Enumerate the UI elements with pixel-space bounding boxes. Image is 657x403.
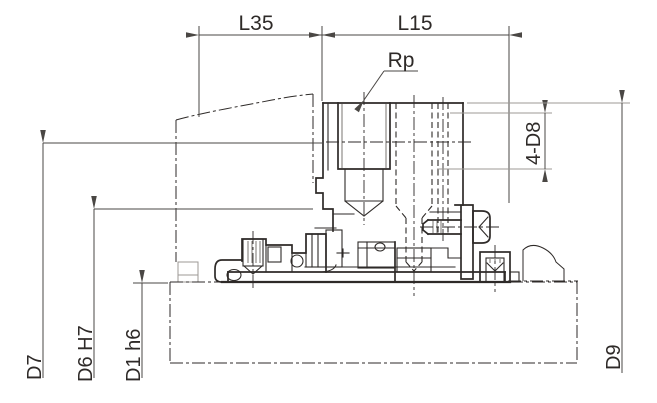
seal-face-stack bbox=[306, 228, 349, 267]
label-d6h7: D6 H7 bbox=[75, 325, 97, 382]
spring-section bbox=[291, 255, 303, 267]
label-d9: D9 bbox=[603, 344, 625, 370]
dimension-l35: L35 bbox=[199, 12, 322, 117]
drive-block bbox=[480, 252, 519, 282]
label-d1h6: D1 h6 bbox=[123, 329, 145, 382]
rotating-collar-assembly bbox=[215, 234, 326, 282]
gland-inner-steps bbox=[305, 242, 461, 282]
o-ring-mid bbox=[375, 243, 385, 251]
label-l35: L35 bbox=[238, 12, 273, 35]
dimension-d9: D9 bbox=[467, 103, 630, 373]
technical-drawing-canvas: L35 L15 Rp 4-D8 D9 D7 D6 H7 bbox=[0, 0, 657, 403]
dimension-d6h7: D6 H7 bbox=[75, 209, 313, 382]
label-4d8: 4-D8 bbox=[523, 122, 545, 165]
label-rp: Rp bbox=[388, 49, 415, 72]
phantom-shaft bbox=[170, 281, 577, 363]
label-l15: L15 bbox=[397, 12, 432, 35]
shaft-sleeve bbox=[222, 272, 510, 282]
dimension-4d8: 4-D8 bbox=[437, 113, 552, 169]
seal-drawing-svg: L35 L15 Rp 4-D8 D9 D7 D6 H7 bbox=[0, 0, 657, 403]
label-d7: D7 bbox=[24, 354, 46, 380]
leader-rp: Rp bbox=[364, 49, 418, 100]
gland-bolt bbox=[423, 211, 490, 243]
dimension-d1h6: D1 h6 bbox=[123, 283, 168, 382]
dimension-l15: L15 bbox=[322, 12, 509, 203]
